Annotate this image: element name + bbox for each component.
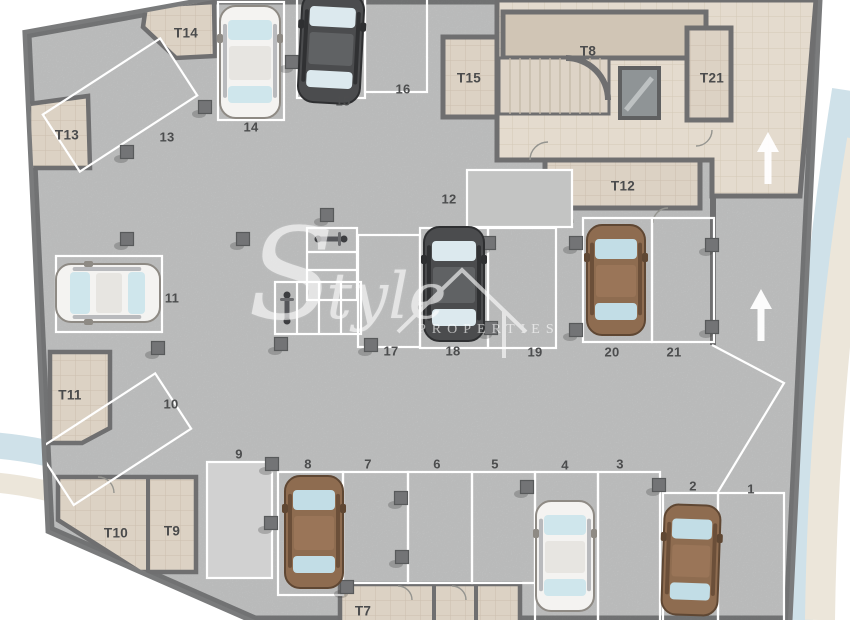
room-T13	[29, 96, 90, 168]
car-white-spot-11	[56, 261, 160, 325]
room-T15	[443, 37, 497, 117]
car-dark-spot-15	[294, 0, 368, 105]
room-T7	[340, 584, 520, 620]
floorplan-svg	[0, 0, 850, 620]
car-white-spot-14	[217, 6, 283, 118]
spot-9-outline	[207, 462, 272, 578]
parking-floorplan: T14T13T15T8T21T12T11T10T9T71234567891011…	[0, 0, 850, 620]
staircase	[499, 58, 609, 114]
room-T10-T9	[58, 477, 196, 572]
car-brown-spot-20	[584, 225, 648, 335]
car-brown-spot-8	[282, 476, 346, 588]
elevator	[620, 68, 659, 118]
room-T21	[687, 28, 731, 120]
spot-12-outline	[467, 170, 572, 227]
room-T8	[503, 12, 706, 58]
car-dark-spot-18	[421, 227, 487, 341]
car-white-spot-4	[533, 501, 597, 611]
room-T11	[50, 352, 110, 443]
car-brown-spot-2	[658, 504, 724, 616]
